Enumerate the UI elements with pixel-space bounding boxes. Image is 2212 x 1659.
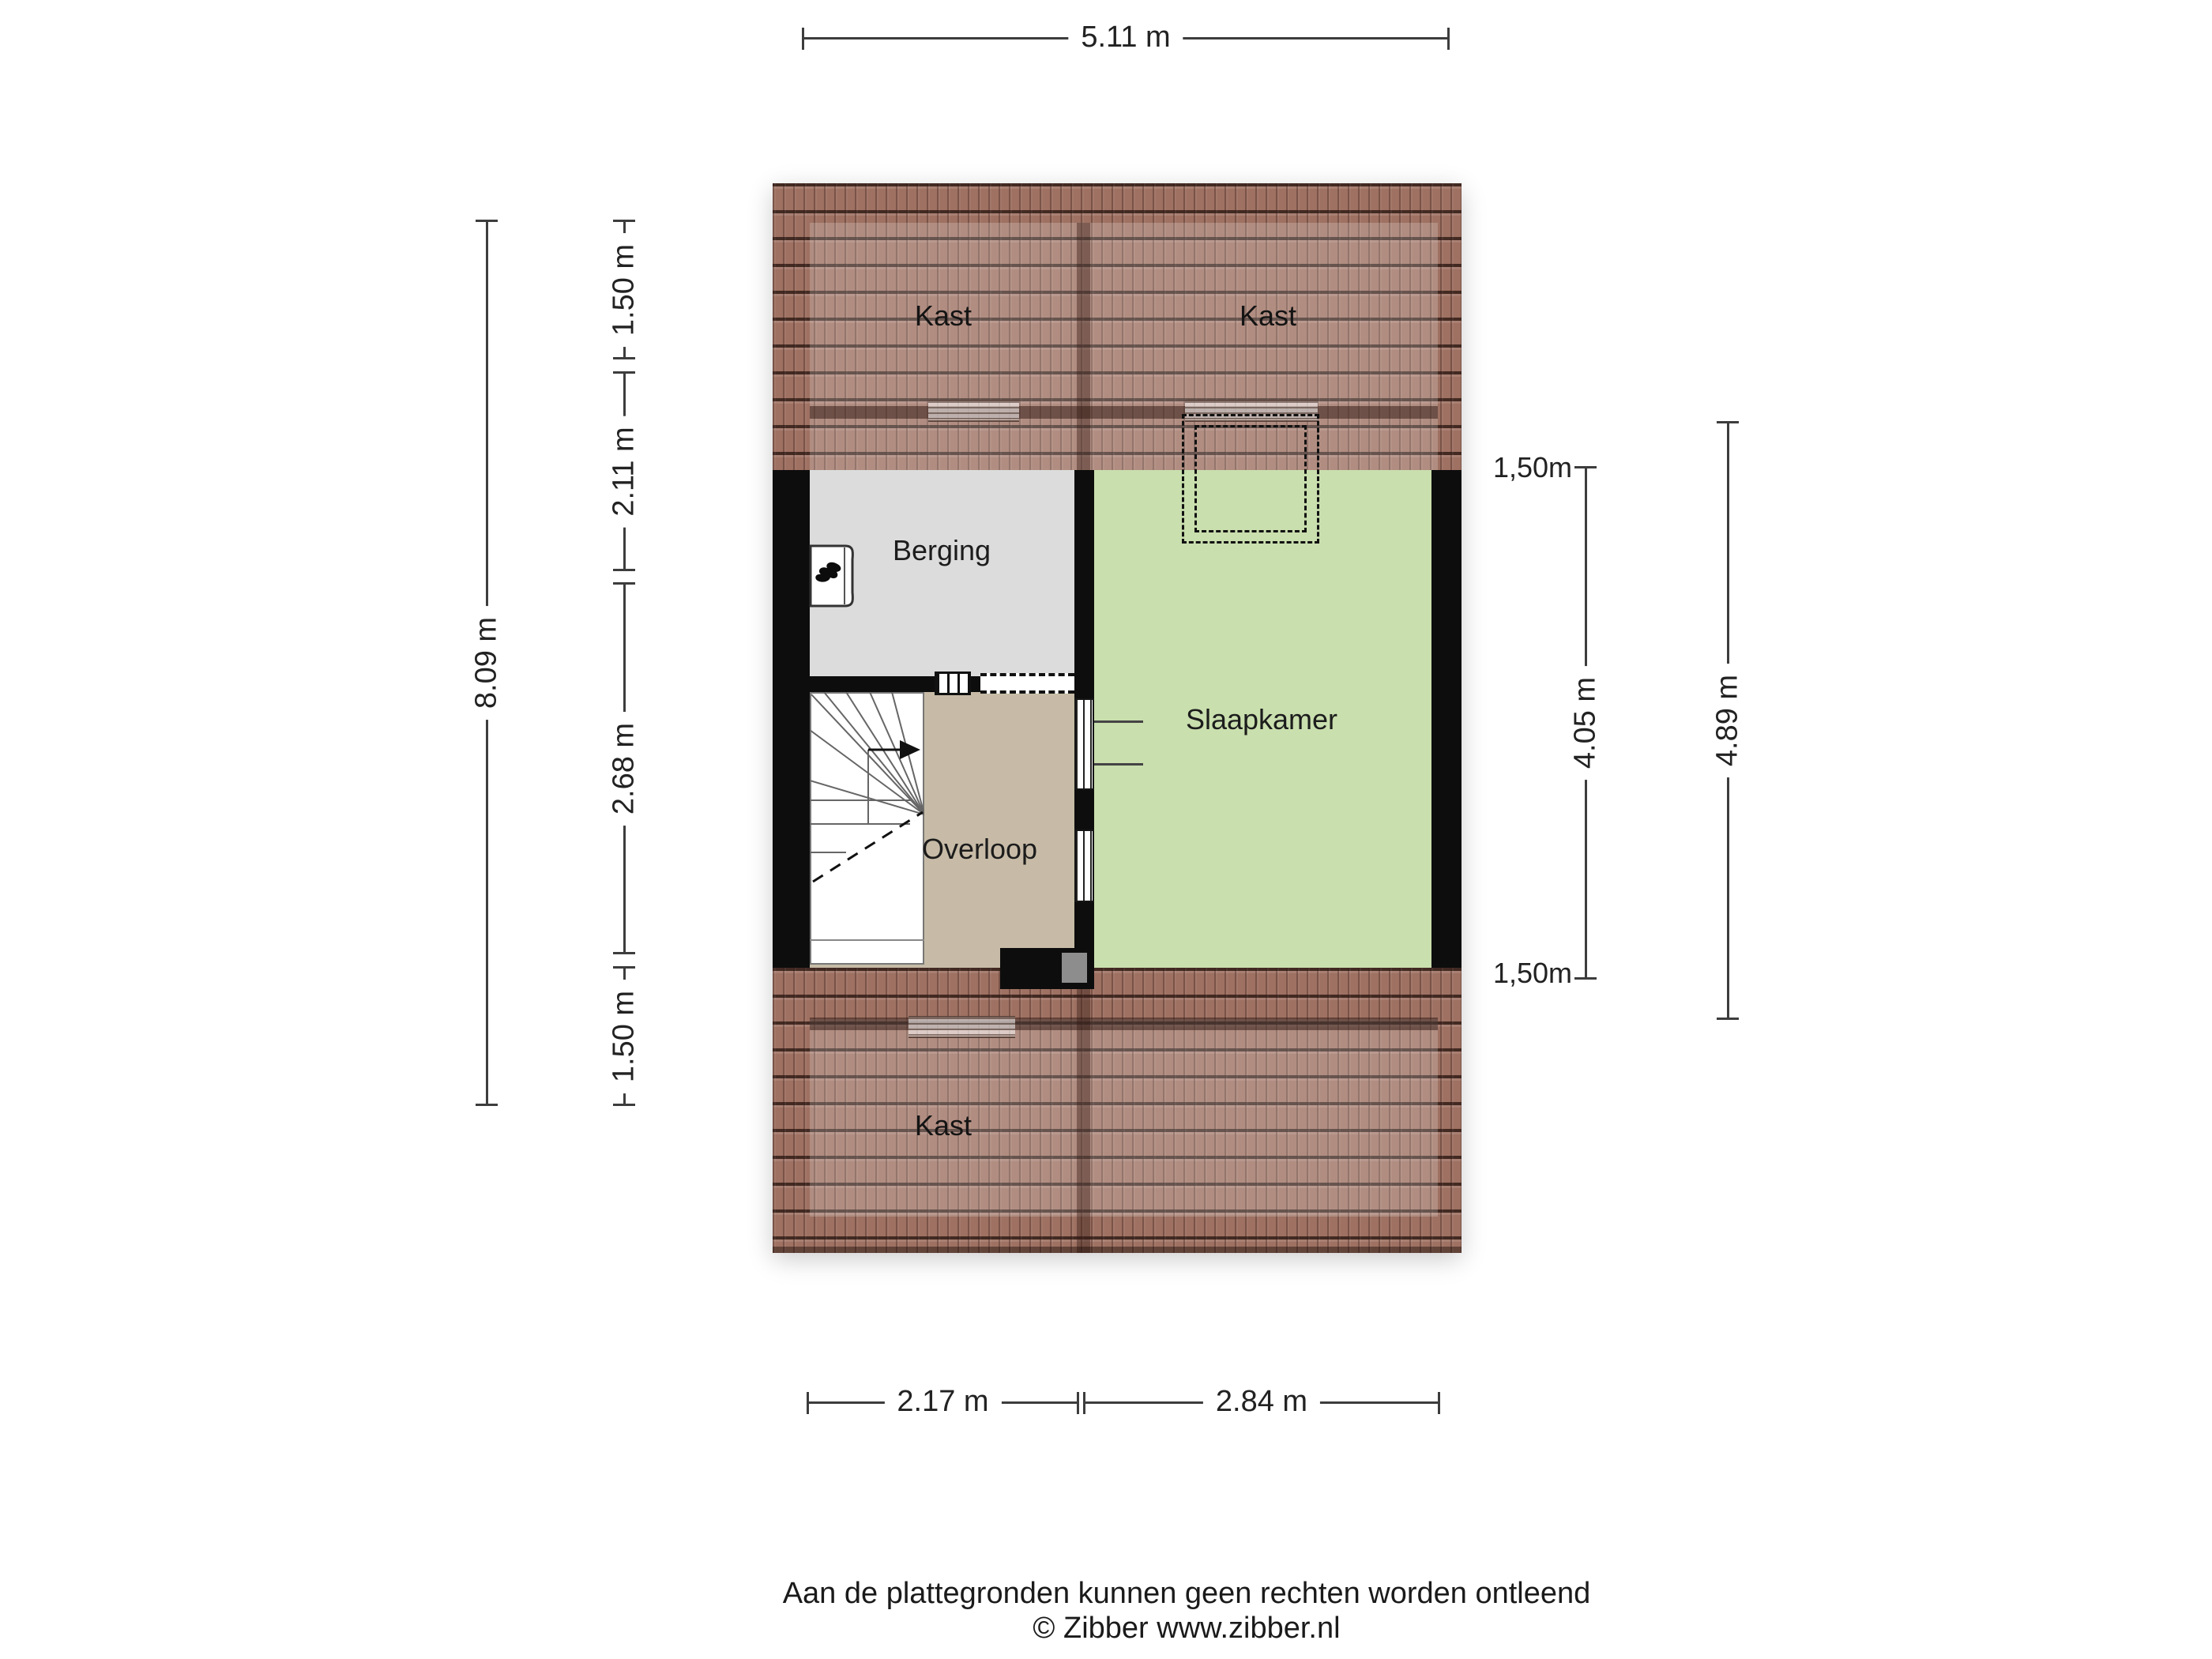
dimension-left-seg-1-label: 1.50 m	[608, 232, 641, 346]
dimension-bottom-seg-1: 2.17 m	[807, 1392, 1079, 1414]
roof-top-seam	[1077, 223, 1090, 470]
dimension-bottom-seg-1-label: 2.17 m	[884, 1385, 1001, 1419]
knee-window-top-left	[928, 400, 1019, 422]
wall-right	[1431, 470, 1461, 968]
knee-window-bottom	[908, 1016, 1015, 1038]
dimension-left-seg-4-label: 1.50 m	[608, 979, 641, 1093]
dimension-left-seg-3: 2.68 m	[613, 582, 635, 954]
roof-bottom-seam	[1077, 968, 1090, 1253]
dimension-top-width-label: 5.11 m	[1068, 21, 1183, 55]
dimension-top-width: 5.11 m	[802, 28, 1450, 50]
room-label-overloop: Overloop	[922, 833, 1037, 866]
boiler-unit	[807, 544, 858, 608]
door-berging-symbol	[935, 671, 971, 695]
wall-left	[773, 470, 810, 968]
roof-top-attic-area	[810, 223, 1438, 470]
wall-bottom-jog-notch	[1060, 951, 1089, 984]
dimension-left-seg-2-label: 2.11 m	[608, 416, 641, 527]
door-panel-slaapkamer-lower	[1074, 829, 1094, 902]
dimension-bottom-seg-2: 2.84 m	[1083, 1392, 1440, 1414]
dimension-right-room-height: 4.05 m	[1574, 466, 1597, 980]
dimension-left-total-label: 8.09 m	[470, 606, 504, 720]
dimension-right-room-height-label: 4.05 m	[1569, 666, 1603, 780]
footer-disclaimer: Aan de plattegronden kunnen geen rechten…	[713, 1577, 1661, 1611]
room-label-kast-bottom: Kast	[915, 1109, 972, 1142]
dimension-right-total-label: 4.89 m	[1711, 664, 1745, 777]
dimension-left-seg-1: 1.50 m	[613, 220, 635, 359]
dimension-left-total: 8.09 m	[476, 220, 498, 1106]
dimension-right-total: 4.89 m	[1717, 421, 1739, 1020]
knee-wall-line-top	[810, 406, 1438, 419]
knee-wall-line-bottom	[810, 1018, 1438, 1030]
dimension-right-knee-top-label: 1,50m	[1493, 451, 1572, 484]
door-swing-tick-lower	[1094, 763, 1143, 766]
dimension-left-seg-3-label: 2.68 m	[608, 711, 641, 825]
dimension-left-seg-2: 2.11 m	[613, 371, 635, 571]
room-label-kast-top-right: Kast	[1240, 299, 1296, 333]
door-panel-slaapkamer-upper	[1074, 698, 1094, 790]
sliding-opening-symbol	[980, 673, 1074, 694]
room-label-slaapkamer: Slaapkamer	[1186, 703, 1337, 736]
dimension-left-seg-4: 1.50 m	[613, 966, 635, 1106]
dormer-dashed-outline-inner	[1194, 425, 1307, 532]
floorplan-page: Kast Kast Berging Slaapkamer Overloop Ka…	[0, 0, 2212, 1659]
room-label-kast-top-left: Kast	[915, 299, 972, 333]
dimension-right-knee-bottom-label: 1,50m	[1493, 957, 1572, 990]
floorplan: Kast Kast Berging Slaapkamer Overloop Ka…	[773, 183, 1461, 1253]
door-swing-tick-upper	[1094, 720, 1143, 723]
dimension-bottom-seg-2-label: 2.84 m	[1203, 1385, 1320, 1419]
roof-bottom-attic-area	[810, 1019, 1438, 1217]
footer-copyright: © Zibber www.zibber.nl	[713, 1612, 1661, 1646]
roof-bottom-eave-edge	[773, 1247, 1461, 1253]
room-label-berging: Berging	[893, 534, 991, 567]
stairs	[810, 692, 924, 965]
